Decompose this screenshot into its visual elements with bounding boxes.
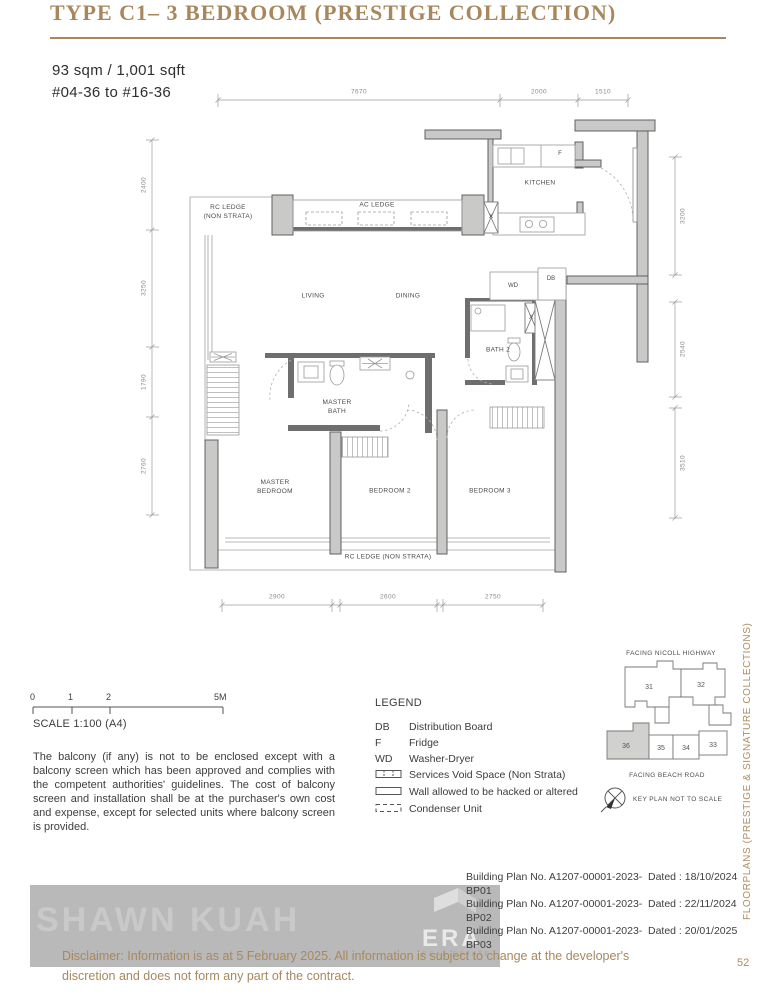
room-label-bedroom2: BEDROOM 2 (369, 488, 411, 497)
master-bath-fixtures (298, 357, 414, 385)
scale-caption: SCALE 1:100 (A4) (33, 718, 127, 730)
keyplan-top-label: FACING NICOLL HIGHWAY (626, 650, 716, 657)
keyplan-bottom-label: FACING BEACH ROAD (629, 772, 705, 779)
legend-desc-db: Distribution Board (409, 721, 625, 733)
floor-plan-drawing (130, 80, 690, 625)
scale-tick-2: 2 (106, 692, 111, 702)
scale-tick-5m: 5M (214, 692, 227, 702)
scale-tick-1: 1 (68, 692, 73, 702)
dim-top-2: 2000 (531, 89, 547, 96)
compass-icon (601, 788, 625, 812)
tag-services-void-2: X (529, 315, 533, 321)
footer-disclaimer: Disclaimer: Information is as at 5 Febru… (62, 946, 647, 986)
dim-left-2: 3250 (141, 280, 148, 296)
keyplan-num-33: 33 (709, 742, 717, 749)
legend-desc-wd: Washer-Dryer (409, 753, 625, 765)
keyplan-num-36: 36 (622, 743, 630, 750)
tag-fridge: F (558, 151, 562, 157)
kitchen-fixtures (493, 145, 585, 235)
legend-key-f: F (375, 737, 409, 749)
keyplan-num-31: 31 (645, 684, 653, 691)
legend-desc-condenser: Condenser Unit (409, 803, 625, 816)
title-rule (50, 37, 726, 39)
dim-bottom-2: 2600 (380, 594, 396, 601)
building-plan-date: Dated : 22/11/2024 (648, 898, 737, 925)
tag-washer-dryer: WD (508, 283, 518, 289)
building-plan-row: Building Plan No. A1207-00001-2023-BP02 … (466, 898, 737, 925)
scale-bar: 0 1 2 5M SCALE 1:100 (A4) (30, 692, 250, 734)
dim-right-3: 3510 (680, 455, 687, 471)
services-void-symbol (375, 769, 409, 782)
walls (205, 120, 655, 572)
dim-right-1: 3200 (680, 208, 687, 224)
key-plan-drawing: FACING NICOLL HIGHWAY 31 32 36 (597, 645, 749, 817)
legend-desc-f: Fridge (409, 737, 625, 749)
dim-top-3: 1510 (595, 89, 611, 96)
balcony-note: The balcony (if any) is not to be enclos… (33, 750, 335, 834)
building-plan-no: Building Plan No. A1207-00001-2023-BP01 (466, 871, 648, 898)
building-plan-no: Building Plan No. A1207-00001-2023-BP02 (466, 898, 648, 925)
keyplan-connector (709, 705, 731, 725)
building-plan-date: Dated : 18/10/2024 (648, 871, 737, 898)
keyplan-connector-2 (655, 707, 669, 723)
building-plan-date: Dated : 20/01/2025 (648, 925, 737, 952)
legend-desc-services-void: Services Void Space (Non Strata) (409, 769, 625, 782)
dim-right-2: 2540 (680, 341, 687, 357)
room-label-rc-ledge-bottom: RC LEDGE (NON STRATA) (345, 554, 432, 563)
condenser-symbol (375, 803, 409, 816)
scale-ruler (30, 705, 240, 715)
scale-tick-0: 0 (30, 692, 35, 702)
floorplan-page: TYPE C1– 3 BEDROOM (PRESTIGE COLLECTION)… (0, 0, 764, 1000)
room-label-ac-ledge: AC LEDGE (359, 202, 394, 211)
keyplan-note: KEY PLAN NOT TO SCALE (633, 796, 722, 803)
page-number: 52 (737, 957, 749, 969)
door-swings (270, 148, 637, 440)
legend-key-wd: WD (375, 753, 409, 765)
keyplan-num-32: 32 (697, 682, 705, 689)
legend: LEGEND DB Distribution Board F Fridge WD… (375, 697, 625, 816)
tag-services-void-1: X (489, 214, 493, 220)
room-label-kitchen: KITCHEN (525, 180, 556, 189)
legend-key-db: DB (375, 721, 409, 733)
dim-left-3: 1790 (141, 374, 148, 390)
keyplan-num-34: 34 (682, 745, 690, 752)
dim-bottom-3: 2750 (485, 594, 501, 601)
keyplan-num-35: 35 (657, 745, 665, 752)
room-label-dining: DINING (396, 293, 421, 302)
building-plan-row: Building Plan No. A1207-00001-2023-BP01 … (466, 871, 737, 898)
watermark-name: SHAWN KUAH (36, 901, 300, 940)
bath2-fixtures (471, 305, 528, 382)
wd-db-closets (490, 268, 566, 300)
floor-plan: RC LEDGE (NON STRATA) AC LEDGE KITCHEN L… (130, 80, 690, 625)
wall-hack-symbol (375, 786, 409, 799)
unit-area: 93 sqm / 1,001 sqft (52, 60, 185, 82)
tag-distribution-board: DB (547, 276, 555, 282)
legend-desc-wall-hack: Wall allowed to be hacked or altered (409, 786, 625, 799)
room-label-living: LIVING (301, 293, 324, 302)
room-label-rc-ledge-top: RC LEDGE (NON STRATA) (204, 204, 253, 222)
dim-left-4: 2760 (141, 458, 148, 474)
key-plan: FACING NICOLL HIGHWAY 31 32 36 (597, 645, 749, 817)
keyplan-unit-31 (625, 661, 681, 707)
room-label-master-bedroom: MASTER BEDROOM (257, 479, 293, 497)
building-plan-list: Building Plan No. A1207-00001-2023-BP01 … (466, 871, 737, 952)
page-title: TYPE C1– 3 BEDROOM (PRESTIGE COLLECTION) (50, 0, 616, 26)
legend-title: LEGEND (375, 697, 625, 709)
side-collection-label: FLOORPLANS (PRESTIGE & SIGNATURE COLLECT… (742, 623, 753, 920)
room-label-master-bath: MASTER BATH (323, 399, 352, 417)
dim-top-1: 7670 (351, 89, 367, 96)
dim-left-1: 2400 (141, 177, 148, 193)
room-label-bedroom3: BEDROOM 3 (469, 488, 511, 497)
dim-bottom-1: 2900 (269, 594, 285, 601)
room-label-bath2: BATH 2 (486, 347, 510, 356)
keyplan-unit-36 (607, 723, 649, 759)
